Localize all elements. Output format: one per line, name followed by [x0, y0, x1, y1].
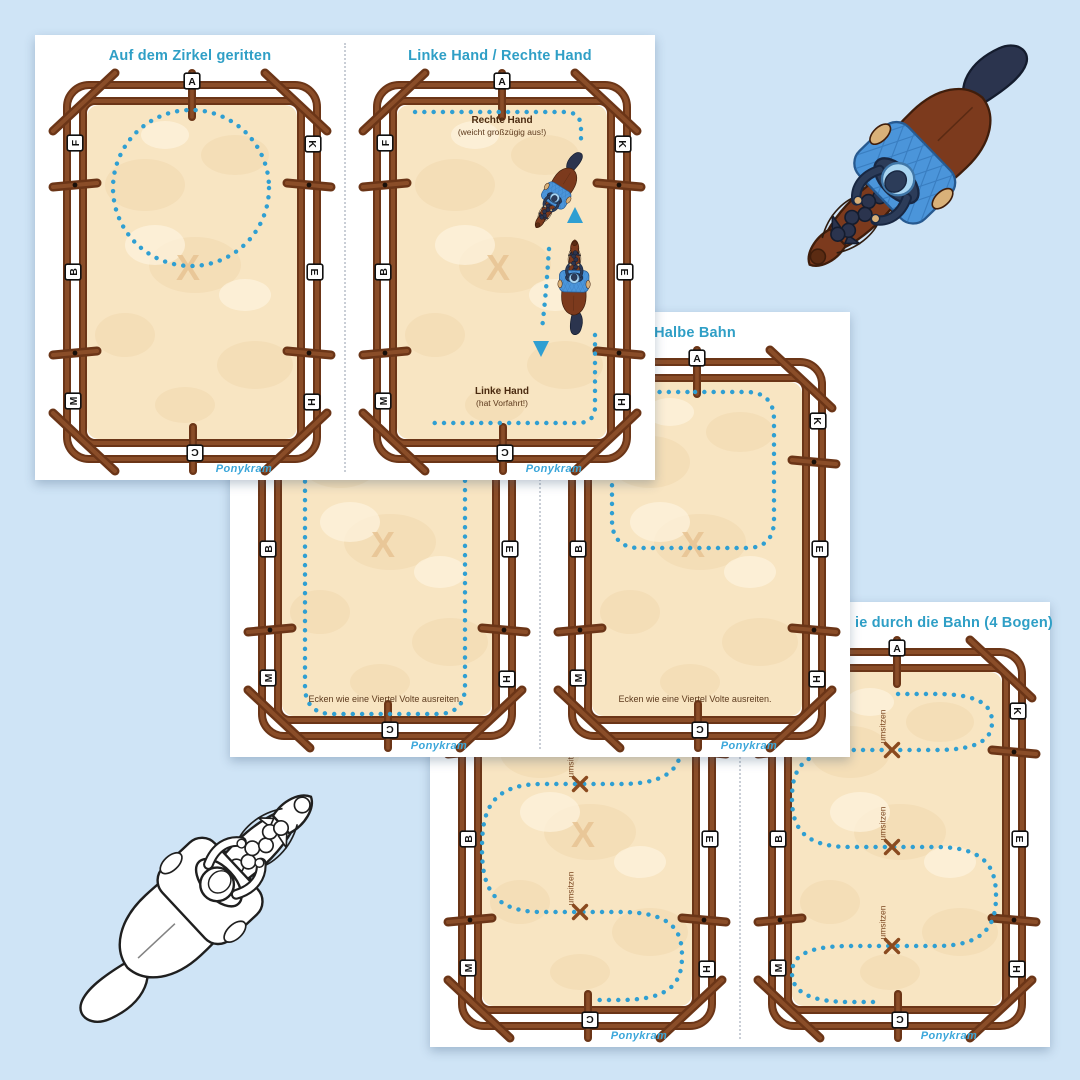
corner-note: Ecken wie eine Viertel Volte ausreiten. [230, 694, 540, 704]
brand-logo-text: Ponykram [230, 740, 540, 752]
corner-note: Ecken wie eine Viertel Volte ausreiten. [540, 694, 850, 704]
arena-haende-illustration: X A C F B M K E H [345, 35, 655, 480]
arena-letter-M: M [65, 393, 81, 409]
card-auf-dem-zirkel: X A C F B M K E H Auf dem Zirkel geritte… [35, 35, 345, 480]
arena-letter-E: E [702, 831, 718, 847]
svg-text:C: C [386, 723, 394, 735]
linke-hand-note: (hat Vorfahrt!) [347, 398, 657, 408]
umsitzen-label: umsitzen [878, 884, 889, 940]
arena-letter-A: A [494, 73, 510, 89]
rechte-hand-label: Rechte Hand [347, 115, 657, 126]
brand-logo-text: Ponykram [35, 463, 345, 475]
svg-text:M: M [68, 396, 80, 405]
svg-text:H: H [700, 965, 712, 973]
svg-text:M: M [463, 963, 475, 972]
svg-text:C: C [191, 446, 199, 458]
svg-text:A: A [188, 76, 196, 88]
arena-letter-A: A [889, 640, 905, 656]
arena-letter-H: H [809, 671, 825, 687]
brand-logo-text: Ponykram [740, 1030, 1050, 1042]
svg-text:B: B [378, 268, 390, 276]
arena-letter-C: C [892, 1012, 908, 1028]
arena-letter-F: F [377, 135, 393, 151]
svg-text:X: X [486, 247, 510, 288]
svg-text:E: E [308, 268, 320, 275]
svg-text:A: A [498, 76, 506, 88]
arena-letter-B: B [460, 831, 476, 847]
arena-letter-M: M [770, 960, 786, 976]
arena-letter-E: E [502, 541, 518, 557]
svg-text:B: B [263, 545, 275, 553]
svg-text:K: K [616, 140, 628, 148]
svg-text:C: C [501, 446, 509, 458]
svg-text:E: E [1013, 835, 1025, 842]
arena-letter-M: M [570, 670, 586, 686]
arena-letter-M: M [460, 960, 476, 976]
svg-text:M: M [263, 673, 275, 682]
svg-text:B: B [773, 835, 785, 843]
horse-rider-topview-outline-illustration [26, 734, 366, 1074]
arena-letter-E: E [812, 541, 828, 557]
brand-logo-text: Ponykram [540, 740, 850, 752]
card-title: Auf dem Zirkel geritten [35, 48, 345, 64]
arena-letter-B: B [65, 264, 81, 280]
arena-letter-B: B [375, 264, 391, 280]
linke-hand-label: Linke Hand [347, 386, 657, 397]
svg-text:X: X [176, 247, 200, 288]
svg-text:B: B [463, 835, 475, 843]
svg-text:H: H [500, 675, 512, 683]
umsitzen-label: umsitzen [566, 850, 577, 906]
svg-text:A: A [893, 643, 901, 655]
card-title: Linke Hand / Rechte Hand [345, 48, 655, 64]
arena-letter-H: H [1009, 961, 1025, 977]
svg-text:H: H [305, 398, 317, 406]
svg-text:E: E [703, 835, 715, 842]
arena-letter-B: B [770, 831, 786, 847]
arena-letter-H: H [499, 671, 515, 687]
arena-letter-E: E [617, 264, 633, 280]
svg-text:X: X [371, 524, 395, 565]
svg-text:B: B [573, 545, 585, 553]
svg-text:C: C [896, 1013, 904, 1025]
svg-text:K: K [306, 140, 318, 148]
cut-line-divider [344, 43, 346, 472]
svg-text:C: C [696, 723, 704, 735]
arena-letter-H: H [699, 961, 715, 977]
worksheet-sheet-top: X A C F B M K E H Auf dem Zirkel geritte… [35, 35, 655, 480]
svg-text:A: A [693, 353, 701, 365]
svg-text:M: M [573, 673, 585, 682]
svg-text:K: K [811, 417, 823, 425]
svg-text:F: F [380, 139, 392, 146]
poster-canvas: X A C F B M K E H Auf dem Zirkel geritte… [0, 0, 1080, 1080]
horse-rider-topview-colored-illustration [748, 0, 1080, 330]
svg-text:M: M [773, 963, 785, 972]
arena-letter-C: C [187, 445, 203, 461]
brand-logo-text: Ponykram [430, 1030, 740, 1042]
card-linke-rechte-hand: X A C F B M K E H [345, 35, 655, 480]
arena-letter-E: E [1012, 831, 1028, 847]
arena-letter-A: A [184, 73, 200, 89]
brand-logo-text: Ponykram [345, 463, 655, 475]
arena-letter-C: C [582, 1012, 598, 1028]
umsitzen-label: umsitzen [878, 785, 889, 841]
svg-text:F: F [70, 139, 82, 146]
arena-letter-C: C [692, 722, 708, 738]
arena-letter-H: H [304, 394, 320, 410]
arena-letter-E: E [307, 264, 323, 280]
arena-letter-K: K [1010, 703, 1026, 719]
arena-zirkel-illustration: X A C F B M K E H [35, 35, 345, 480]
svg-text:H: H [1010, 965, 1022, 973]
arena-letter-C: C [497, 445, 513, 461]
arena-letter-B: B [570, 541, 586, 557]
svg-text:E: E [618, 268, 630, 275]
svg-text:E: E [813, 545, 825, 552]
arena-letter-K: K [615, 136, 631, 152]
arena-letter-B: B [260, 541, 276, 557]
arena-letter-F: F [67, 135, 83, 151]
svg-text:H: H [810, 675, 822, 683]
umsitzen-label: umsitzen [878, 688, 889, 744]
arena-letter-K: K [810, 413, 826, 429]
rechte-hand-note: (weicht großzügig aus!) [347, 127, 657, 137]
svg-text:E: E [503, 545, 515, 552]
arena-letter-K: K [305, 136, 321, 152]
svg-text:X: X [681, 524, 705, 565]
arena-letter-M: M [260, 670, 276, 686]
svg-text:K: K [1011, 707, 1023, 715]
svg-text:B: B [68, 268, 80, 276]
arena-letter-A: A [689, 350, 705, 366]
svg-text:C: C [586, 1013, 594, 1025]
arena-letter-C: C [382, 722, 398, 738]
